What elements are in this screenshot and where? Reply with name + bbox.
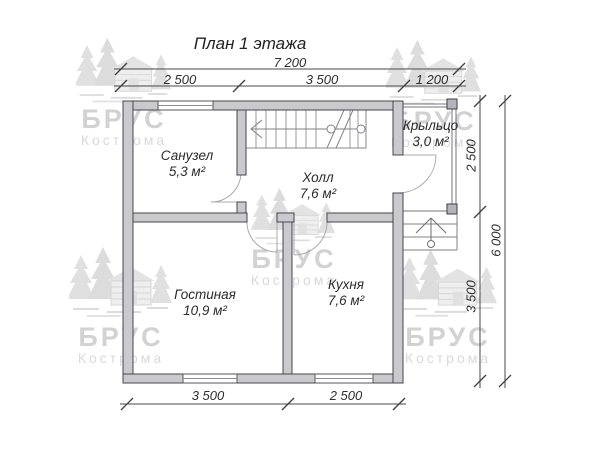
floor-plan-page: БРУС Кострома БРУС Кострома БРУС Костром… xyxy=(0,0,600,450)
dim-bottom-segment-2: 2 500 xyxy=(306,388,386,403)
room-name: Кухня xyxy=(286,277,406,293)
steps-arrow-start xyxy=(428,241,435,248)
dim-right-total: 6 000 xyxy=(489,201,504,281)
stair-post xyxy=(327,125,335,133)
room-label-living: Гостиная 10,9 м² xyxy=(145,287,265,319)
room-label-hall: Холл 7,6 м² xyxy=(258,170,378,202)
staircase xyxy=(246,110,366,148)
wall-bottom-2 xyxy=(237,374,315,383)
stair-post xyxy=(357,125,365,133)
wall-middle-stub xyxy=(277,213,294,222)
room-label-sanuzel: Санузел 5,3 м² xyxy=(127,148,247,180)
page-title: План 1 этажа xyxy=(170,34,330,54)
wall-top-right xyxy=(213,101,403,110)
wall-bottom-1 xyxy=(123,374,183,383)
walls xyxy=(123,101,403,383)
room-name: Крыльцо xyxy=(383,118,478,134)
porch-post xyxy=(447,99,457,109)
room-label-kitchen: Кухня 7,6 м² xyxy=(286,277,406,309)
dim-top-segment-3: 1 200 xyxy=(392,72,472,87)
wall-middle-right xyxy=(327,213,393,222)
room-name: Холл xyxy=(258,170,378,186)
room-area: 5,3 м² xyxy=(127,164,247,180)
room-name: Санузел xyxy=(127,148,247,164)
door-arc-living xyxy=(247,222,277,252)
dim-top-total: 7 200 xyxy=(250,55,330,70)
dim-top-segment-1: 2 500 xyxy=(140,72,220,87)
room-area: 7,6 м² xyxy=(286,293,406,309)
door-arc-entrance xyxy=(398,155,436,193)
room-label-porch: Крыльцо 3,0 м² xyxy=(383,118,478,150)
room-area: 3,0 м² xyxy=(383,134,478,150)
room-area: 10,9 м² xyxy=(145,303,265,319)
wall-middle-left xyxy=(133,213,247,222)
wall-sanuzel-door-jamb xyxy=(237,202,246,213)
porch-post xyxy=(447,204,457,214)
dim-right-segment-2: 3 500 xyxy=(464,257,479,337)
entrance-steps xyxy=(403,214,457,250)
room-area: 7,6 м² xyxy=(258,186,378,202)
room-name: Гостиная xyxy=(145,287,265,303)
dim-top-segment-2: 3 500 xyxy=(282,72,362,87)
dim-bottom-segment-1: 3 500 xyxy=(168,388,248,403)
door-arc-kitchen xyxy=(294,222,327,255)
wall-left xyxy=(123,101,133,383)
